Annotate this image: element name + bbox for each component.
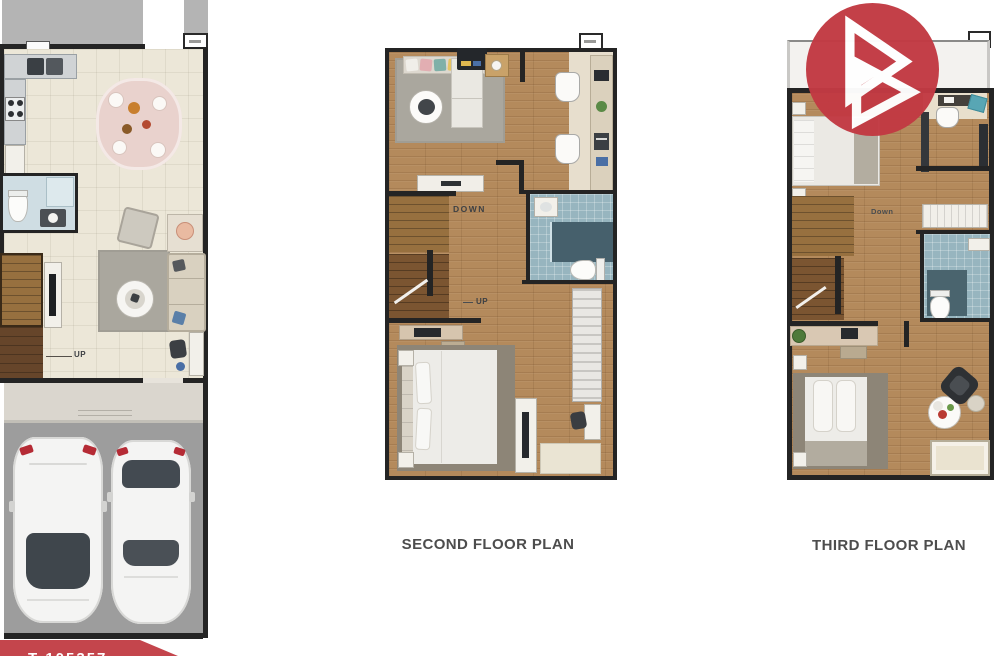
dining-table-set (96, 78, 182, 170)
stair-divider-wall (835, 256, 841, 314)
desk-chair (555, 72, 580, 102)
laptop-key-line (596, 138, 607, 140)
shelf-tv (414, 328, 441, 337)
balcony-drying-rack (572, 288, 602, 402)
desk-paper (944, 97, 954, 103)
shelf-tv (841, 328, 858, 339)
bathroom (920, 234, 990, 320)
burner (17, 100, 23, 106)
duvet-fold-line (441, 351, 442, 463)
plant (792, 329, 806, 343)
bath-sink-basin (540, 202, 552, 212)
bath-sink (968, 238, 990, 251)
tail-light (116, 446, 129, 456)
down-label: DOWN (453, 204, 486, 214)
wall-shelf-dark (979, 124, 988, 166)
dining-plate (152, 96, 167, 111)
study-desk-dark (457, 48, 487, 70)
car-left (13, 437, 103, 623)
hall-chair (169, 339, 187, 359)
burner (17, 111, 23, 117)
bottom-wall (4, 633, 203, 639)
listing-image: UP T 105357 (0, 0, 1000, 656)
sofa-cushion-line (169, 304, 204, 305)
shower-area (46, 177, 74, 207)
rear-glass (122, 460, 180, 488)
porch (4, 383, 203, 423)
entry-notch (143, 0, 184, 46)
tv (49, 274, 56, 316)
pillow (434, 59, 447, 72)
down-label: Down (871, 207, 893, 216)
stairs-upper (792, 196, 854, 256)
up-label-first: UP (74, 350, 86, 359)
toilet-bowl (930, 296, 950, 320)
food-bowl (122, 124, 132, 134)
corner-marker-tick (584, 40, 596, 43)
bedside-table (398, 452, 414, 468)
bed-fold-line (452, 98, 482, 99)
desk-chair (555, 134, 580, 164)
laptop (594, 133, 609, 150)
nook-chair (936, 107, 959, 128)
porch-step-lines (78, 410, 132, 416)
chest-of-drawers (922, 204, 988, 228)
front-glass (123, 540, 179, 566)
wardrobe (930, 440, 990, 476)
foot-bench (840, 346, 867, 359)
side-mirror (9, 501, 15, 512)
hood-line (27, 599, 89, 601)
up-arrow-line (46, 356, 72, 357)
wall-stub (520, 48, 525, 82)
bedside-table (792, 102, 806, 115)
hood-line (124, 576, 178, 578)
stairs (0, 253, 43, 327)
desk-item-blue (596, 157, 608, 166)
stair-divider-wall (427, 250, 433, 296)
hall-desk (189, 332, 204, 376)
bedside-table (793, 355, 807, 370)
wall-stub (916, 166, 990, 171)
up-label: UP (476, 297, 488, 306)
monitor (594, 70, 609, 81)
toilet-tank (596, 258, 605, 282)
side-mirror (189, 492, 195, 502)
dining-plate (108, 92, 124, 108)
shower-glass-line (550, 222, 552, 262)
bathroom-bottom-wall (522, 280, 613, 284)
third-floor-plan-label: THIRD FLOOR PLAN (789, 537, 989, 554)
bedside-table (793, 452, 807, 467)
dining-plate (112, 140, 127, 155)
car-right (111, 440, 191, 624)
master-wall (387, 318, 481, 323)
desk-chair-dark (570, 411, 588, 430)
floor-pad (540, 443, 601, 474)
duvet-gray (805, 441, 867, 466)
dining-plate (150, 142, 166, 158)
master-pillow (836, 380, 856, 432)
up-dash (463, 302, 473, 303)
tail-light (82, 444, 97, 456)
tv (522, 412, 529, 458)
tail-light (19, 444, 34, 456)
stairs-upper (389, 196, 449, 252)
shower-zone (550, 222, 613, 262)
bathroom (526, 194, 613, 282)
food-bowl (128, 102, 140, 114)
bedside-table (398, 350, 414, 366)
side-stool (967, 395, 985, 412)
price-banner-text: T 105357 (28, 650, 107, 656)
desk-book-blue (473, 61, 481, 66)
food-bowl (142, 120, 151, 129)
fridge (5, 145, 25, 175)
burner (8, 100, 14, 106)
food-red (938, 410, 947, 419)
dresser-handle (441, 181, 461, 186)
food-green (947, 404, 954, 411)
second-floor-plan: DOWN UP (383, 0, 623, 520)
desk-book-yellow (461, 61, 471, 66)
stairs-lower-dark (0, 327, 43, 379)
bedside-lamp (491, 60, 502, 71)
wall-stub (904, 321, 909, 347)
master-pillow (813, 380, 833, 432)
brand-logo-glyph (806, 3, 939, 136)
side-mirror (107, 492, 113, 502)
first-floor-plan: UP (0, 0, 208, 656)
pillow (405, 58, 418, 71)
headboard-cushions (402, 352, 413, 462)
kitchen-cooktop (46, 58, 63, 75)
lamp (176, 222, 194, 240)
corner-marker-tick (189, 40, 201, 43)
plate (933, 401, 943, 411)
trunk-line (29, 463, 87, 465)
burner (8, 111, 14, 117)
toilet-bowl (570, 260, 596, 280)
second-floor-plan-label: SECOND FLOOR PLAN (383, 536, 593, 553)
plant (176, 362, 185, 371)
brand-logo (806, 3, 939, 136)
pillow (419, 58, 432, 71)
toilet-tank (8, 190, 28, 197)
windshield-glass (26, 533, 90, 589)
desk-plant (596, 101, 607, 112)
vanity-basin (48, 213, 58, 223)
side-mirror (101, 501, 107, 512)
kitchen-sink (27, 58, 44, 75)
master-pillow (415, 362, 432, 405)
bathroom-bottom-wall (920, 318, 990, 322)
sofa-cushion-line (169, 278, 204, 279)
lounge-chair-blanket (418, 99, 435, 115)
master-pillow (415, 408, 432, 451)
